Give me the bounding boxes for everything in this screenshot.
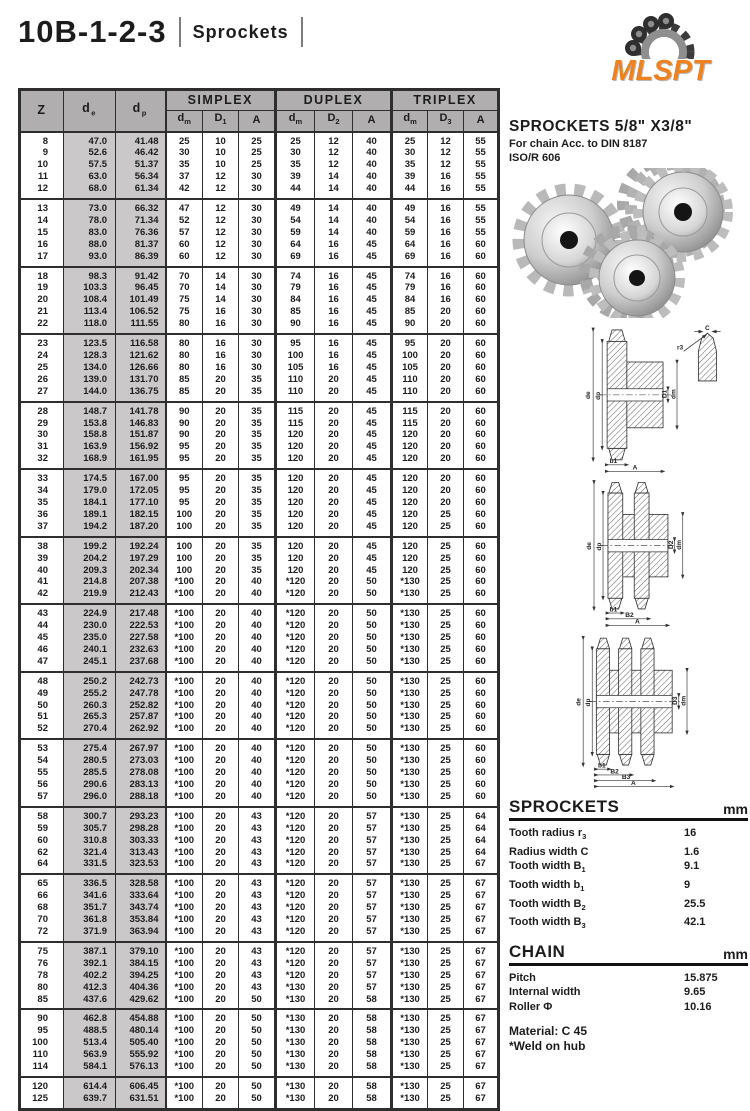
table-cell: 34 (20, 485, 64, 497)
table-cell: 95 (20, 1025, 64, 1037)
product-iso-line: ISO/R 606 (509, 152, 748, 164)
table-cell: 20 (315, 620, 353, 632)
table-cell: 85 (392, 306, 428, 318)
table-cell: 120 (392, 565, 428, 577)
table-cell: *100 (166, 723, 203, 739)
table-cell: 61.34 (116, 183, 166, 199)
table-cell: 40 (353, 132, 392, 148)
table-cell: 44 (20, 620, 64, 632)
table-cell: 184.1 (64, 497, 116, 509)
table-cell: 35 (239, 386, 276, 402)
table-cell: 100 (166, 521, 203, 537)
table-row: 1898.391.42701430741645741660 (20, 267, 499, 283)
table-cell: 60 (464, 282, 499, 294)
table-cell: 39 (276, 171, 315, 183)
table-cell: 60 (464, 656, 499, 672)
table-cell: 351.7 (64, 902, 116, 914)
table-cell: 20 (428, 497, 464, 509)
table-cell: 53 (20, 739, 64, 755)
svg-text:B2: B2 (610, 768, 619, 775)
table-cell: 55 (464, 183, 499, 199)
table-cell: 222.53 (116, 620, 166, 632)
table-cell: 40 (239, 632, 276, 644)
table-cell: 197.29 (116, 553, 166, 565)
table-cell: *130 (392, 874, 428, 890)
table-row: 37194.2187.20100203512020451202560 (20, 521, 499, 537)
table-cell: 84 (276, 294, 315, 306)
table-cell: 328.58 (116, 874, 166, 890)
table-cell: 60 (464, 711, 499, 723)
table-cell: 70 (166, 282, 203, 294)
table-cell: 48 (20, 672, 64, 688)
table-cell: 43 (239, 890, 276, 902)
table-cell: 199.2 (64, 537, 116, 553)
table-cell: 76.36 (116, 227, 166, 239)
table-cell: *100 (166, 644, 203, 656)
table-cell: *120 (276, 807, 315, 823)
table-cell: *100 (166, 1093, 203, 1109)
title-divider (301, 17, 303, 47)
table-cell: 45 (353, 374, 392, 386)
table-cell: 20 (315, 1061, 353, 1077)
table-cell: 115 (276, 418, 315, 430)
spec-row: Roller Φ10.16 (509, 1000, 748, 1015)
table-cell: 20 (428, 418, 464, 430)
table-row: 95488.5480.14*1002050*1302058*1302567 (20, 1025, 499, 1037)
table-cell: 18 (20, 267, 64, 283)
table-cell: 30 (239, 227, 276, 239)
table-cell: 163.9 (64, 441, 116, 453)
table-cell: 20 (203, 1025, 239, 1037)
table-cell: 16 (428, 251, 464, 267)
table-block: 53275.4267.97*1002040*1202050*1302560542… (20, 739, 499, 807)
table-cell: *130 (392, 858, 428, 874)
col-header-triplex-dm: dm (392, 111, 428, 132)
table-cell: 50 (353, 711, 392, 723)
spec-label: Tooth width B1 (509, 859, 684, 878)
table-cell: 95 (166, 453, 203, 469)
table-cell: 59 (20, 823, 64, 835)
table-cell: 14 (315, 227, 353, 239)
table-cell: 25 (428, 982, 464, 994)
table-cell: 75 (20, 942, 64, 958)
table-cell: *130 (392, 902, 428, 914)
table-cell: 25 (428, 1009, 464, 1025)
table-cell: 20 (203, 755, 239, 767)
table-cell: 20 (428, 334, 464, 350)
table-cell: 67 (464, 902, 499, 914)
table-cell: 278.08 (116, 767, 166, 779)
table-cell: *120 (276, 779, 315, 791)
table-cell: 25 (428, 656, 464, 672)
table-cell: *120 (276, 858, 315, 874)
table-cell: 40 (239, 620, 276, 632)
svg-text:A: A (633, 465, 638, 472)
table-cell: 45 (353, 318, 392, 334)
table-cell: 30 (20, 429, 64, 441)
table-cell: 16 (315, 239, 353, 251)
table-cell: 20 (315, 644, 353, 656)
table-cell: 25 (428, 890, 464, 902)
table-row: 26139.0131.7085203511020451102060 (20, 374, 499, 386)
table-cell: 25 (428, 926, 464, 942)
table-cell: 20 (203, 942, 239, 958)
table-cell: 90 (166, 402, 203, 418)
duplex-sprocket-image (585, 231, 679, 318)
table-cell: 35 (239, 497, 276, 509)
table-cell: *120 (276, 739, 315, 755)
table-cell: 67 (464, 1037, 499, 1049)
table-cell: 57 (166, 227, 203, 239)
table-cell: 60 (464, 350, 499, 362)
table-cell: *130 (392, 926, 428, 942)
table-cell: 45 (353, 429, 392, 441)
table-cell: 45 (353, 537, 392, 553)
table-cell: 10 (203, 132, 239, 148)
table-cell: 20 (315, 688, 353, 700)
table-row: 100513.4505.40*1002050*1302058*1302567 (20, 1037, 499, 1049)
table-cell: *120 (276, 823, 315, 835)
table-cell: *100 (166, 902, 203, 914)
table-cell: 20 (428, 374, 464, 386)
table-cell: 100 (166, 509, 203, 521)
table-cell: 20 (315, 576, 353, 588)
table-cell: 60 (464, 576, 499, 588)
table-cell: 606.45 (116, 1077, 166, 1093)
table-cell: 108.4 (64, 294, 116, 306)
table-cell: 156.92 (116, 441, 166, 453)
table-cell: 217.48 (116, 604, 166, 620)
table-cell: 70 (166, 267, 203, 283)
table-cell: 60 (464, 374, 499, 386)
table-cell: 134.0 (64, 362, 116, 374)
table-cell: *130 (276, 1061, 315, 1077)
table-cell: 20 (203, 970, 239, 982)
table-cell: 20 (203, 914, 239, 926)
table-cell: *100 (166, 604, 203, 620)
table-cell: 20 (203, 521, 239, 537)
table-cell: 40 (353, 183, 392, 199)
table-cell: 30 (239, 318, 276, 334)
table-cell: *100 (166, 779, 203, 791)
table-cell: 40 (239, 755, 276, 767)
table-cell: 25 (428, 688, 464, 700)
table-cell: 56 (20, 779, 64, 791)
table-cell: 63.0 (64, 171, 116, 183)
table-row: 1268.061.34421230441440441655 (20, 183, 499, 199)
table-cell: 20 (428, 429, 464, 441)
table-cell: 20 (203, 429, 239, 441)
table-cell: 60 (464, 644, 499, 656)
table-cell: *130 (276, 982, 315, 994)
table-cell: 12 (315, 147, 353, 159)
table-cell: 60 (464, 418, 499, 430)
table-row: 19103.396.45701430791645791660 (20, 282, 499, 294)
table-cell: 298.28 (116, 823, 166, 835)
table-cell: 300.7 (64, 807, 116, 823)
table-cell: 20 (315, 418, 353, 430)
table-cell: 20 (315, 521, 353, 537)
table-cell: *130 (392, 835, 428, 847)
table-cell: 50 (353, 620, 392, 632)
table-cell: 563.9 (64, 1049, 116, 1061)
material-note: Material: C 45 (509, 1024, 748, 1039)
table-cell: 25 (428, 835, 464, 847)
table-cell: 60 (20, 835, 64, 847)
table-cell: 40 (239, 656, 276, 672)
table-cell: 45 (353, 565, 392, 577)
table-cell: 40 (239, 688, 276, 700)
table-cell: 103.3 (64, 282, 116, 294)
table-cell: 35 (166, 159, 203, 171)
product-title: SPROCKETS 5/8" X3/8" (509, 118, 748, 136)
table-cell: 204.2 (64, 553, 116, 565)
table-cell: 25 (428, 509, 464, 521)
table-cell: *120 (276, 620, 315, 632)
table-cell: 67 (464, 874, 499, 890)
table-cell: 74 (276, 267, 315, 283)
table-cell: 54 (392, 215, 428, 227)
table-cell: *130 (276, 1009, 315, 1025)
table-cell: 293.23 (116, 807, 166, 823)
table-cell: 64 (20, 858, 64, 874)
table-cell: 20 (315, 779, 353, 791)
table-cell: 252.82 (116, 700, 166, 712)
svg-text:dm: dm (680, 696, 687, 706)
table-cell: 60 (166, 251, 203, 267)
table-cell: 20 (315, 374, 353, 386)
group-header-triplex: TRIPLEX (392, 90, 499, 111)
table-cell: 120 (392, 441, 428, 453)
table-cell: 113.4 (64, 306, 116, 318)
table-cell: 131.70 (116, 374, 166, 386)
table-cell: 45 (353, 294, 392, 306)
svg-text:de: de (575, 698, 582, 706)
table-cell: 16 (315, 251, 353, 267)
table-cell: 25 (428, 858, 464, 874)
table-cell: *100 (166, 755, 203, 767)
table-cell: 20 (315, 402, 353, 418)
table-cell: 25 (428, 1049, 464, 1061)
table-cell: 95 (166, 485, 203, 497)
table-cell: 576.13 (116, 1061, 166, 1077)
table-row: 1478.071.34521230541440541655 (20, 215, 499, 227)
table-cell: 58 (353, 1049, 392, 1061)
table-cell: *130 (392, 914, 428, 926)
table-cell: 25 (428, 779, 464, 791)
svg-text:b1: b1 (610, 606, 618, 613)
title-block: 10B-1-2-3 Sprockets (18, 14, 303, 50)
svg-text:A: A (631, 780, 636, 787)
table-cell: 224.9 (64, 604, 116, 620)
table-row: 25134.0126.6680163010516451052060 (20, 362, 499, 374)
table-cell: 78.0 (64, 215, 116, 227)
table-cell: *100 (166, 700, 203, 712)
table-cell: 20 (203, 374, 239, 386)
table-cell: *130 (392, 958, 428, 970)
table-row: 847.041.48251025251240251255 (20, 132, 499, 148)
table-cell: 20 (203, 537, 239, 553)
table-row: 38199.2192.24100203512020451202560 (20, 537, 499, 553)
table-cell: 50 (239, 1009, 276, 1025)
table-cell: 20 (203, 739, 239, 755)
table-cell: 115 (276, 402, 315, 418)
svg-text:dm: dm (670, 389, 677, 399)
table-cell: 83.0 (64, 227, 116, 239)
table-cell: 45 (353, 306, 392, 318)
table-cell: 20 (203, 723, 239, 739)
table-cell: 115 (392, 402, 428, 418)
table-cell: 20 (203, 553, 239, 565)
table-cell: 54 (276, 215, 315, 227)
table-cell: 20 (315, 942, 353, 958)
table-cell: 16 (428, 239, 464, 251)
spec-row: Tooth width B19.1 (509, 859, 748, 878)
table-cell: 66.32 (116, 199, 166, 215)
table-cell: 58 (353, 1025, 392, 1037)
table-cell: 45 (353, 251, 392, 267)
table-cell: 20 (315, 604, 353, 620)
table-cell: *100 (166, 576, 203, 588)
spec-label: Internal width (509, 985, 684, 1000)
table-cell: 59 (276, 227, 315, 239)
table-block: 75387.1379.10*1002043*1202057*1302567763… (20, 942, 499, 1010)
spec-value: 9.65 (684, 985, 748, 1000)
table-header: Z de dp SIMPLEX DUPLEX TRIPLEX dm D1 A d… (20, 90, 499, 132)
table-cell: 20 (315, 711, 353, 723)
tooth-detail-diagram: C r3 (677, 325, 721, 381)
table-cell: 60 (464, 537, 499, 553)
table-cell: 12 (203, 239, 239, 251)
table-cell: 20 (203, 858, 239, 874)
table-cell: 141.78 (116, 402, 166, 418)
table-cell: 25 (428, 958, 464, 970)
table-cell: *120 (276, 576, 315, 588)
table-cell: 35 (239, 485, 276, 497)
table-cell: 88.0 (64, 239, 116, 251)
table-cell: 43 (239, 902, 276, 914)
table-cell: 270.4 (64, 723, 116, 739)
table-row: 125639.7631.51*1002050*1302058*1302567 (20, 1093, 499, 1109)
table-cell: 51.37 (116, 159, 166, 171)
table-cell: 40 (353, 199, 392, 215)
table-cell: 60 (464, 485, 499, 497)
table-cell: *120 (276, 874, 315, 890)
table-cell: *100 (166, 620, 203, 632)
table-cell: 16 (315, 294, 353, 306)
table-cell: 55 (464, 159, 499, 171)
table-cell: 20 (203, 791, 239, 807)
table-cell: *100 (166, 588, 203, 604)
table-cell: 30 (392, 147, 428, 159)
table-cell: *130 (392, 672, 428, 688)
table-cell: *130 (276, 1025, 315, 1037)
table-cell: 57 (353, 858, 392, 874)
table-cell: 57 (353, 926, 392, 942)
table-cell: 110 (392, 374, 428, 386)
table-cell: 227.58 (116, 632, 166, 644)
table-cell: 20 (315, 739, 353, 755)
table-cell: 44 (276, 183, 315, 199)
table-cell: 255.2 (64, 688, 116, 700)
spec-label: Tooth width B2 (509, 897, 684, 916)
table-row: 110563.9555.92*1002050*1302058*1302567 (20, 1049, 499, 1061)
table-cell: 105 (276, 362, 315, 374)
table-row: 41214.8207.38*1002040*1202050*1302560 (20, 576, 499, 588)
table-cell: 35 (20, 497, 64, 509)
table-cell: *130 (276, 994, 315, 1010)
product-heading-block: SPROCKETS 5/8" X3/8" For chain Acc. to D… (509, 118, 748, 164)
table-cell: *130 (392, 632, 428, 644)
table-cell: 100 (166, 537, 203, 553)
table-cell: 187.20 (116, 521, 166, 537)
table-cell: 16 (428, 282, 464, 294)
table-cell: *100 (166, 958, 203, 970)
table-cell: 20 (203, 509, 239, 521)
table-cell: 25 (428, 604, 464, 620)
table-cell: 25 (428, 994, 464, 1010)
table-cell: 60 (464, 453, 499, 469)
table-cell: 513.4 (64, 1037, 116, 1049)
table-cell: 25 (428, 914, 464, 926)
table-cell: 95 (276, 334, 315, 350)
table-cell: *120 (276, 970, 315, 982)
table-cell: 95 (166, 441, 203, 453)
table-row: 45235.0227.58*1002040*1202050*1302560 (20, 632, 499, 644)
table-cell: 90 (20, 1009, 64, 1025)
table-cell: 57.5 (64, 159, 116, 171)
table-cell: 35 (239, 441, 276, 453)
table-row: 1793.086.39601230691645691660 (20, 251, 499, 267)
table-block: 120614.4606.45*1002050*1302058*130256712… (20, 1077, 499, 1109)
table-cell: 20 (315, 565, 353, 577)
table-cell: 16 (428, 199, 464, 215)
table-cell: 43 (20, 604, 64, 620)
table-cell: 67 (464, 1025, 499, 1037)
spec-row: Radius width C1.6 (509, 845, 748, 860)
table-cell: 120 (392, 469, 428, 485)
table-cell: 20 (203, 1093, 239, 1109)
table-cell: 120 (392, 497, 428, 509)
table-cell: 42 (20, 588, 64, 604)
table-cell: *130 (392, 1009, 428, 1025)
table-cell: 151.87 (116, 429, 166, 441)
table-cell: 20 (203, 576, 239, 588)
table-cell: 12 (315, 159, 353, 171)
table-cell: 60 (464, 521, 499, 537)
table-cell: 437.6 (64, 994, 116, 1010)
table-cell: 20 (203, 418, 239, 430)
table-cell: *130 (392, 1049, 428, 1061)
table-cell: 20 (315, 807, 353, 823)
table-cell: 20 (315, 588, 353, 604)
table-cell: 72 (20, 926, 64, 942)
table-cell: 139.0 (64, 374, 116, 386)
table-cell: *100 (166, 994, 203, 1010)
table-cell: 120 (392, 553, 428, 565)
table-block: 1373.066.324712304914404916551478.071.34… (20, 199, 499, 267)
table-cell: 95 (166, 497, 203, 509)
table-cell: 66 (20, 890, 64, 902)
svg-text:C: C (705, 325, 710, 332)
table-cell: *100 (166, 823, 203, 835)
table-cell: 90 (166, 429, 203, 441)
table-cell: 177.10 (116, 497, 166, 509)
table-cell: 480.14 (116, 1025, 166, 1037)
table-cell: 80 (166, 334, 203, 350)
table-cell: 30 (239, 199, 276, 215)
table-cell: 45 (353, 497, 392, 509)
